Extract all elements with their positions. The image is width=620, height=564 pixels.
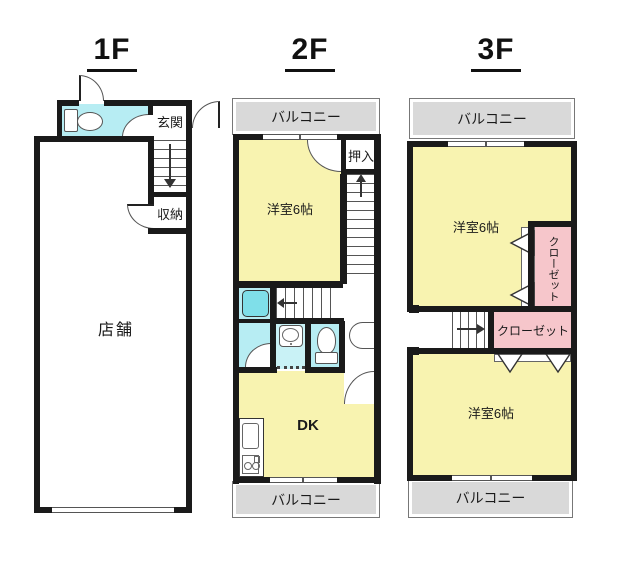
wall <box>233 134 239 484</box>
wall <box>337 477 381 483</box>
arrow-left-icon <box>277 298 284 308</box>
wall <box>34 136 40 513</box>
balcony-window <box>452 475 532 481</box>
closet-lower-label: クローゼット <box>497 322 569 338</box>
floor3-title: 3F <box>471 33 521 72</box>
storage-label: 収納 <box>150 204 190 222</box>
wall <box>341 169 381 174</box>
entrance-door-arc <box>192 101 220 128</box>
window-mullion <box>490 476 492 480</box>
floor1-title: 1F <box>87 33 137 72</box>
wall <box>413 348 577 354</box>
wall <box>233 281 343 288</box>
burner-icon <box>252 462 260 470</box>
wall <box>407 475 452 481</box>
door-jamb <box>409 305 419 313</box>
stove-icon <box>242 455 259 474</box>
stair-arrow <box>457 328 479 330</box>
sink-drain-icon <box>290 343 292 345</box>
hall-door-arc <box>349 322 374 349</box>
storefront-opening <box>52 507 174 513</box>
sink-basin-icon <box>282 328 299 342</box>
balcony: バルコニー <box>232 481 380 518</box>
toilet-outer-door-arc <box>79 75 104 101</box>
wall <box>528 221 577 227</box>
balcony: バルコニー <box>409 98 575 139</box>
wall <box>374 134 381 484</box>
bedroom-upper-label: 洋室6帖 <box>444 217 508 235</box>
balcony: バルコニー <box>408 478 573 518</box>
bedroom-label: 洋室6帖 <box>258 199 322 217</box>
wall <box>407 141 448 147</box>
wall <box>270 287 276 371</box>
wall <box>34 136 154 142</box>
stair-arrow <box>283 302 297 304</box>
kitchen-counter <box>239 418 264 477</box>
bedroom-lower-label: 洋室6帖 <box>459 403 523 421</box>
wall <box>407 141 413 312</box>
wall <box>340 174 347 284</box>
stair-arrow <box>169 144 171 180</box>
toilet-bowl-icon <box>77 112 103 131</box>
arrow-up-icon <box>356 174 366 182</box>
door-jamb <box>409 347 419 355</box>
window-mullion <box>299 135 301 139</box>
wall <box>407 347 413 481</box>
wall <box>413 306 577 312</box>
balcony-label: バルコニー <box>409 479 572 517</box>
wall <box>186 100 192 513</box>
wall <box>524 141 577 147</box>
wall <box>57 100 62 141</box>
toilet-bowl-icon <box>317 327 336 354</box>
wall <box>233 477 270 483</box>
toilet-tank-icon <box>64 109 78 132</box>
wall <box>532 475 577 481</box>
balcony-label: バルコニー <box>233 99 379 134</box>
entrance-label: 玄関 <box>150 112 190 130</box>
balcony: バルコニー <box>232 98 380 135</box>
grill-icon <box>254 456 260 463</box>
wall <box>339 321 345 371</box>
balcony-label: バルコニー <box>233 482 379 517</box>
folding-door-icon <box>545 353 571 374</box>
window-mullion <box>485 142 487 146</box>
accordion-door <box>277 361 305 369</box>
wall <box>488 306 494 354</box>
stair-arrow <box>360 181 362 197</box>
wall <box>305 323 311 369</box>
shop-label: 店舗 <box>66 317 166 339</box>
wall <box>305 367 345 373</box>
sink-icon <box>279 325 303 347</box>
folding-door-icon <box>497 353 523 374</box>
floor2-title: 2F <box>285 33 335 72</box>
window-mullion <box>302 478 304 482</box>
oshiire-label: 押入 <box>345 147 377 163</box>
kitchen-sink-icon <box>242 423 259 449</box>
floorplan-canvas: 1F 2F 3F 玄関 収納 店舗 <box>0 0 620 564</box>
dk-label: DK <box>290 416 326 434</box>
arrow-down-icon <box>164 179 176 188</box>
wall <box>152 192 192 197</box>
toilet-tank-icon <box>315 352 338 364</box>
wall <box>148 228 192 234</box>
closet-upper-label: クローゼット <box>543 233 563 305</box>
bathtub-icon <box>242 290 269 317</box>
wall <box>233 367 277 373</box>
wall <box>239 319 271 323</box>
balcony-label: バルコニー <box>410 99 574 138</box>
burner-icon <box>244 462 252 470</box>
wall <box>528 221 534 312</box>
arrow-right-icon <box>477 324 485 334</box>
